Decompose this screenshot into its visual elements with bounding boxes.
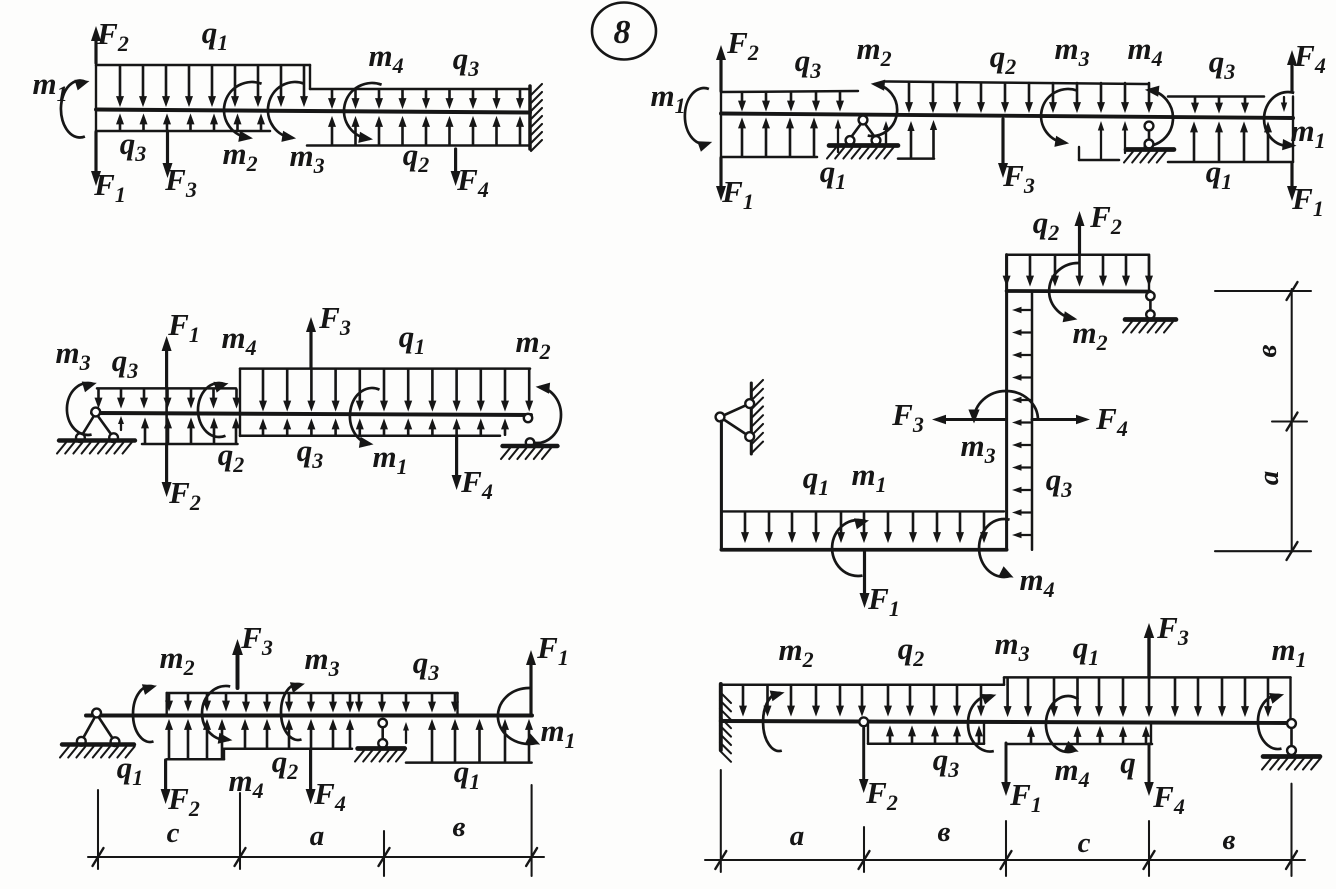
svg-text:c: c — [167, 817, 180, 849]
svg-text:c: c — [1078, 827, 1091, 859]
svg-text:в: в — [1223, 824, 1236, 856]
svg-text:8: 8 — [614, 14, 631, 51]
svg-text:в: в — [938, 816, 951, 848]
svg-text:a: a — [310, 820, 325, 852]
svg-text:в: в — [1251, 344, 1283, 357]
svg-text:a: a — [790, 820, 805, 852]
svg-text:q: q — [1120, 745, 1136, 780]
svg-text:в: в — [453, 811, 466, 843]
svg-text:a: a — [1253, 471, 1285, 486]
